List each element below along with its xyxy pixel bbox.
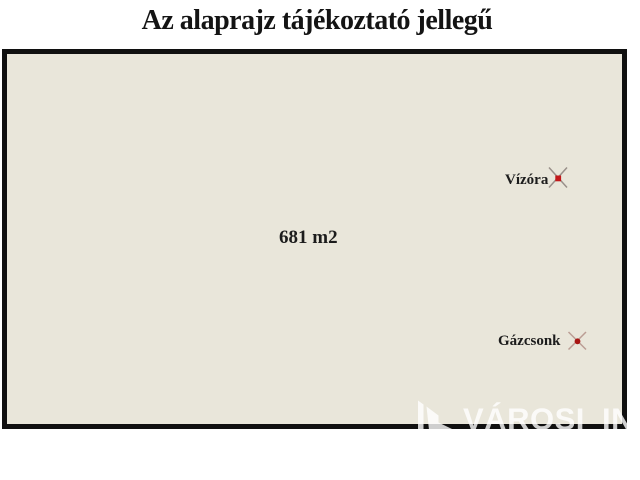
svg-text:VÁROSI: VÁROSI — [463, 402, 585, 437]
svg-text:IN: IN — [602, 402, 634, 437]
